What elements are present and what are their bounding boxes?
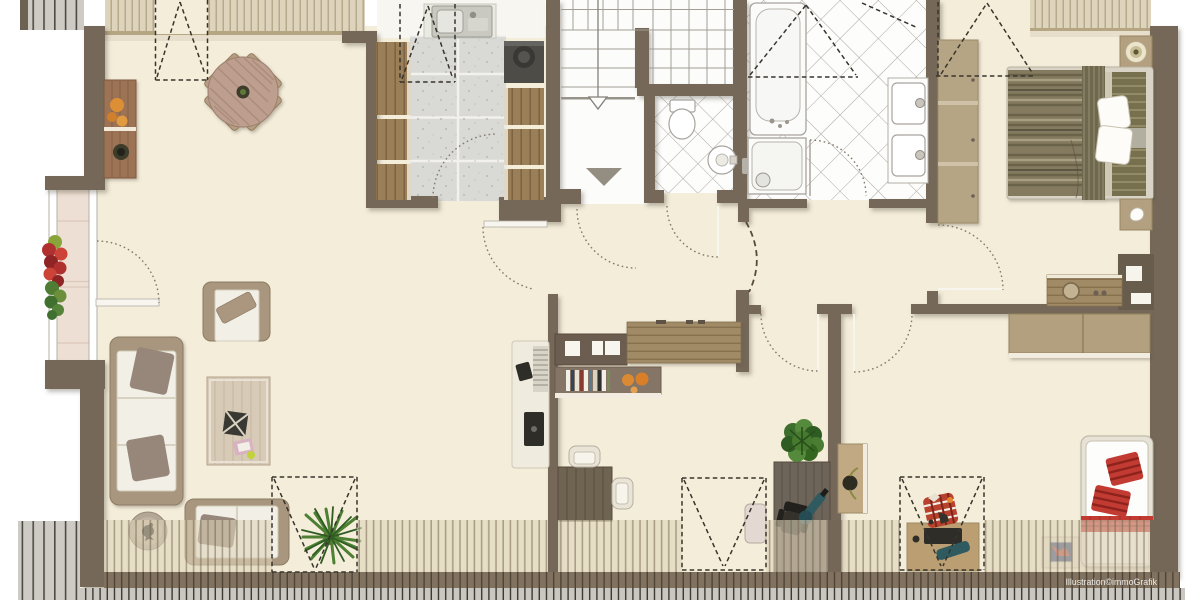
svg-text:Illustration©immoGrafik: Illustration©immoGrafik: [1065, 577, 1157, 587]
